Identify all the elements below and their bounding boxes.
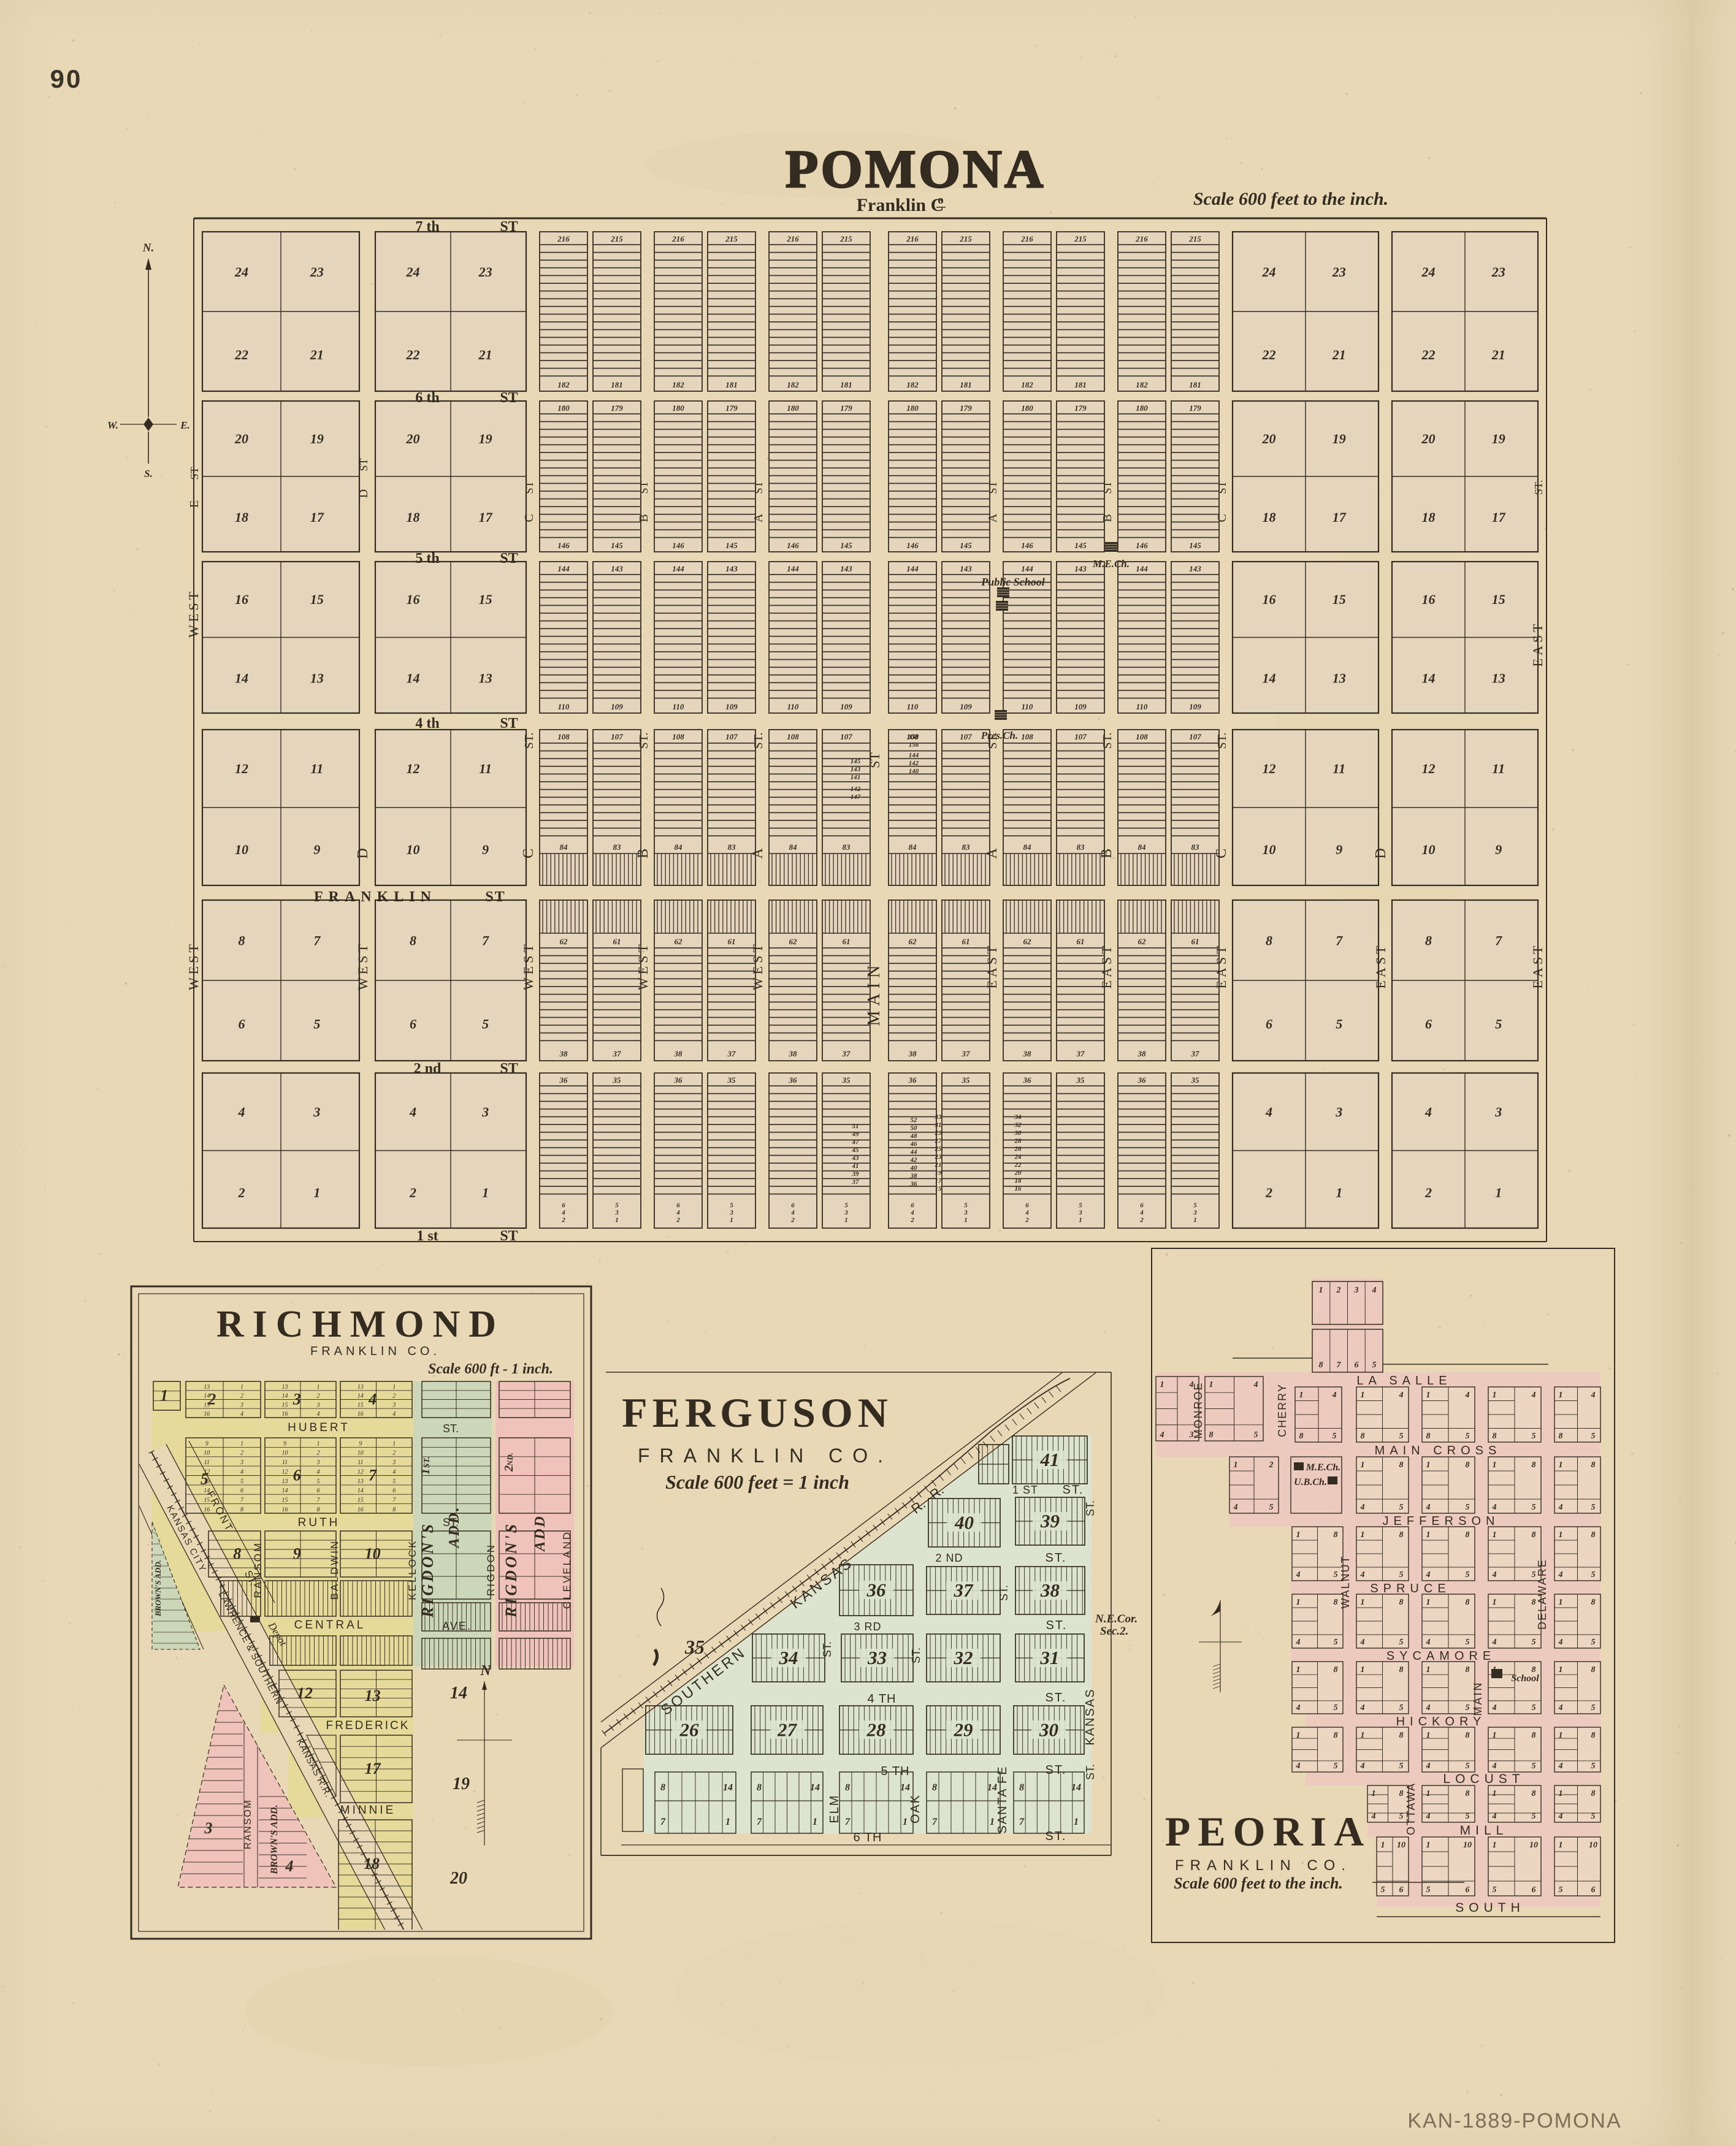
svg-text:143: 143 <box>611 564 623 573</box>
svg-text:8: 8 <box>932 1782 937 1793</box>
svg-text:6: 6 <box>911 1202 914 1209</box>
svg-text:5: 5 <box>1466 1762 1470 1771</box>
svg-text:37: 37 <box>842 1049 851 1058</box>
svg-text:5: 5 <box>1493 1885 1497 1895</box>
svg-text:3: 3 <box>316 1402 320 1408</box>
svg-text:13: 13 <box>310 671 324 686</box>
svg-text:13: 13 <box>479 671 492 686</box>
svg-text:179: 179 <box>1074 403 1087 413</box>
svg-text:19: 19 <box>1333 431 1346 446</box>
svg-text:180: 180 <box>787 403 799 413</box>
svg-text:13: 13 <box>358 1478 364 1485</box>
svg-text:EAST: EAST <box>1530 621 1545 667</box>
svg-text:8: 8 <box>1334 1665 1338 1674</box>
svg-text:5: 5 <box>1591 1432 1596 1441</box>
svg-text:146: 146 <box>1136 541 1148 550</box>
svg-text:ST.: ST. <box>1046 1763 1067 1777</box>
svg-text:5: 5 <box>1591 1812 1596 1821</box>
svg-text:17: 17 <box>1492 510 1506 525</box>
svg-text:5: 5 <box>1334 1570 1338 1579</box>
svg-text:8: 8 <box>1399 1530 1404 1540</box>
svg-text:5: 5 <box>313 1017 320 1032</box>
svg-text:8: 8 <box>1591 1665 1596 1674</box>
svg-text:6: 6 <box>1532 1885 1536 1895</box>
svg-text:144: 144 <box>1136 564 1148 573</box>
svg-text:22: 22 <box>1421 347 1436 362</box>
svg-text:110: 110 <box>558 702 570 711</box>
svg-text:84: 84 <box>1023 842 1032 852</box>
svg-text:13: 13 <box>282 1384 288 1391</box>
svg-text:MILL: MILL <box>1460 1823 1508 1838</box>
svg-text:3: 3 <box>963 1209 968 1216</box>
svg-text:5: 5 <box>964 1202 968 1209</box>
svg-text:180: 180 <box>1136 403 1148 413</box>
svg-text:6: 6 <box>1466 1885 1470 1895</box>
svg-text:61: 61 <box>1077 937 1085 946</box>
svg-text:1: 1 <box>240 1384 243 1391</box>
svg-text:9: 9 <box>293 1545 301 1563</box>
svg-text:10: 10 <box>1422 842 1436 857</box>
svg-text:5: 5 <box>1466 1638 1470 1647</box>
svg-text:7: 7 <box>757 1817 762 1827</box>
svg-text:26: 26 <box>679 1719 700 1741</box>
svg-text:WEST: WEST <box>521 941 536 990</box>
svg-text:83: 83 <box>613 842 622 852</box>
svg-text:D: D <box>357 489 370 498</box>
svg-text:4: 4 <box>561 1209 565 1216</box>
svg-text:40: 40 <box>954 1512 974 1533</box>
svg-text:19: 19 <box>935 1169 943 1177</box>
svg-text:144: 144 <box>1021 564 1033 573</box>
svg-text:6: 6 <box>1140 1202 1144 1209</box>
svg-text:7: 7 <box>1019 1817 1025 1827</box>
svg-text:5: 5 <box>615 1202 619 1209</box>
svg-text:38: 38 <box>1023 1049 1032 1058</box>
svg-text:110: 110 <box>907 702 919 711</box>
svg-text:62: 62 <box>675 937 683 946</box>
svg-text:4: 4 <box>1558 1812 1563 1821</box>
svg-text:4: 4 <box>1426 1812 1431 1821</box>
svg-text:HUBERT: HUBERT <box>288 1421 350 1434</box>
svg-text:4: 4 <box>1296 1703 1301 1713</box>
svg-text:18: 18 <box>1422 510 1436 525</box>
svg-text:144: 144 <box>787 564 799 573</box>
svg-text:8: 8 <box>1399 1731 1404 1740</box>
svg-text:110: 110 <box>673 702 684 711</box>
svg-text:4: 4 <box>1558 1703 1563 1713</box>
svg-text:6: 6 <box>791 1202 795 1209</box>
svg-text:8: 8 <box>1466 1598 1470 1607</box>
svg-text:146: 146 <box>557 541 570 550</box>
svg-text:5: 5 <box>1333 1432 1337 1441</box>
svg-text:37: 37 <box>1191 1049 1200 1058</box>
svg-text:32: 32 <box>1014 1121 1022 1129</box>
svg-text:4: 4 <box>368 1391 377 1408</box>
svg-text:145: 145 <box>960 541 972 550</box>
svg-text:36: 36 <box>910 1180 918 1188</box>
svg-text:21: 21 <box>478 347 492 362</box>
svg-text:180: 180 <box>557 403 570 413</box>
svg-text:143: 143 <box>725 564 738 573</box>
svg-text:38: 38 <box>908 1049 917 1058</box>
svg-text:1: 1 <box>903 1817 908 1827</box>
svg-text:21: 21 <box>1491 347 1505 362</box>
svg-text:182: 182 <box>1136 380 1148 389</box>
svg-text:6: 6 <box>410 1017 416 1032</box>
svg-text:9: 9 <box>1495 842 1502 857</box>
svg-text:4: 4 <box>409 1104 416 1120</box>
svg-text:5: 5 <box>1254 1430 1258 1440</box>
svg-text:1: 1 <box>1426 1789 1431 1798</box>
svg-text:83: 83 <box>1077 842 1085 852</box>
svg-text:4: 4 <box>1139 1209 1144 1216</box>
svg-text:84: 84 <box>789 842 798 852</box>
svg-text:1: 1 <box>1299 1391 1304 1400</box>
svg-text:19: 19 <box>1492 431 1505 446</box>
svg-text:109: 109 <box>725 702 738 711</box>
svg-text:26: 26 <box>1014 1145 1022 1153</box>
svg-text:13: 13 <box>358 1384 364 1391</box>
svg-text:38: 38 <box>789 1049 798 1058</box>
svg-text:35: 35 <box>613 1075 622 1085</box>
svg-text:3: 3 <box>313 1104 320 1120</box>
svg-text:10: 10 <box>1397 1841 1405 1850</box>
svg-text:8: 8 <box>1591 1530 1596 1540</box>
svg-text:ST.: ST. <box>1532 480 1545 495</box>
svg-text:5: 5 <box>1466 1503 1470 1512</box>
svg-text:13: 13 <box>1333 671 1346 686</box>
svg-text:ST.: ST. <box>1063 1483 1084 1497</box>
svg-text:5: 5 <box>1532 1762 1536 1771</box>
svg-text:24: 24 <box>1262 264 1276 280</box>
svg-text:4: 4 <box>790 1209 795 1216</box>
svg-text:1: 1 <box>1426 1391 1431 1400</box>
svg-text:1: 1 <box>1361 1391 1365 1400</box>
svg-text:34: 34 <box>1014 1113 1022 1121</box>
svg-text:W.: W. <box>107 419 118 431</box>
svg-text:8: 8 <box>1466 1789 1470 1798</box>
svg-text:8: 8 <box>1532 1731 1536 1740</box>
svg-text:CLEVELAND: CLEVELAND <box>561 1530 573 1609</box>
svg-text:5: 5 <box>1532 1638 1536 1647</box>
svg-text:36: 36 <box>674 1075 683 1085</box>
svg-text:35: 35 <box>684 1636 705 1658</box>
svg-text:180: 180 <box>672 403 684 413</box>
svg-text:22: 22 <box>1014 1161 1022 1169</box>
svg-text:1: 1 <box>1493 1841 1497 1850</box>
svg-text:23: 23 <box>1332 264 1346 280</box>
svg-text:RIGDON'S: RIGDON'S <box>419 1522 437 1618</box>
svg-text:27: 27 <box>935 1137 943 1145</box>
svg-text:10: 10 <box>282 1450 288 1457</box>
svg-text:14: 14 <box>900 1782 910 1793</box>
svg-text:1: 1 <box>1559 1789 1563 1798</box>
svg-text:AVE.: AVE. <box>442 1620 472 1632</box>
svg-text:4: 4 <box>1558 1762 1563 1771</box>
svg-text:3: 3 <box>392 1459 396 1466</box>
svg-text:2: 2 <box>409 1185 416 1200</box>
svg-text:4: 4 <box>1360 1570 1365 1579</box>
svg-text:4: 4 <box>1492 1638 1497 1647</box>
svg-text:16: 16 <box>407 592 420 607</box>
svg-text:12: 12 <box>297 1684 313 1702</box>
svg-text:16: 16 <box>1015 1185 1022 1193</box>
svg-text:ADD: ADD <box>532 1514 548 1552</box>
svg-text:1: 1 <box>1559 1665 1563 1674</box>
svg-text:10: 10 <box>235 842 248 857</box>
svg-text:1: 1 <box>1559 1391 1563 1400</box>
svg-text:11: 11 <box>282 1459 288 1466</box>
svg-text:7: 7 <box>932 1817 938 1827</box>
svg-text:5: 5 <box>1399 1503 1404 1512</box>
svg-text:FERGUSON: FERGUSON <box>622 1389 893 1436</box>
svg-text:4: 4 <box>910 1209 914 1216</box>
svg-text:4: 4 <box>1025 1209 1029 1216</box>
svg-text:5: 5 <box>1399 1812 1404 1821</box>
svg-text:16: 16 <box>235 592 248 607</box>
svg-text:8: 8 <box>1399 1789 1404 1798</box>
svg-text:1: 1 <box>1319 1286 1323 1295</box>
svg-text:15: 15 <box>204 1497 210 1504</box>
svg-text:18: 18 <box>364 1855 380 1873</box>
svg-text:ST: ST <box>485 889 505 905</box>
svg-text:1: 1 <box>813 1817 817 1827</box>
svg-text:181: 181 <box>840 380 852 389</box>
svg-text:182: 182 <box>672 380 684 389</box>
svg-text:182: 182 <box>787 380 799 389</box>
svg-text:49: 49 <box>852 1131 860 1138</box>
svg-text:4: 4 <box>317 1468 320 1475</box>
svg-text:4: 4 <box>1492 1812 1497 1821</box>
svg-text:17: 17 <box>1333 510 1347 525</box>
svg-text:Sec.2.: Sec.2. <box>1100 1625 1128 1638</box>
svg-text:1 ST: 1 ST <box>1012 1484 1038 1496</box>
svg-text:108: 108 <box>787 732 799 741</box>
svg-text:84: 84 <box>909 842 917 852</box>
svg-text:147: 147 <box>851 793 861 801</box>
svg-text:4: 4 <box>392 1468 396 1475</box>
svg-text:1: 1 <box>317 1384 320 1391</box>
svg-text:41: 41 <box>1040 1449 1060 1470</box>
svg-text:215: 215 <box>959 234 972 243</box>
svg-text:12: 12 <box>204 1468 210 1475</box>
svg-text:1: 1 <box>1074 1817 1079 1827</box>
svg-text:LA SALLE: LA SALLE <box>1356 1374 1451 1388</box>
svg-text:16: 16 <box>1263 592 1276 607</box>
svg-text:8: 8 <box>239 933 245 948</box>
svg-text:145: 145 <box>1189 541 1201 550</box>
svg-text:15: 15 <box>282 1402 288 1408</box>
svg-text:6: 6 <box>1425 1017 1432 1032</box>
svg-text:7: 7 <box>313 933 321 948</box>
svg-text:3: 3 <box>1078 1209 1082 1216</box>
svg-text:1: 1 <box>1426 1598 1431 1607</box>
svg-text:KELLOCK: KELLOCK <box>407 1539 418 1600</box>
svg-text:8: 8 <box>1493 1432 1497 1441</box>
svg-text:8: 8 <box>240 1506 243 1513</box>
svg-text:216: 216 <box>906 234 919 243</box>
svg-text:142: 142 <box>851 785 861 793</box>
svg-text:14: 14 <box>450 1684 467 1703</box>
svg-text:14: 14 <box>723 1782 733 1793</box>
svg-text:1: 1 <box>1559 1731 1563 1740</box>
svg-text:5: 5 <box>482 1017 489 1032</box>
svg-text:1: 1 <box>1381 1841 1385 1850</box>
svg-text:9: 9 <box>283 1440 286 1447</box>
svg-text:7: 7 <box>482 933 489 948</box>
svg-text:30: 30 <box>1039 1719 1058 1741</box>
svg-text:3: 3 <box>392 1402 396 1408</box>
svg-text:182: 182 <box>557 380 570 389</box>
svg-text:6: 6 <box>562 1202 565 1209</box>
svg-text:ST.: ST. <box>423 1457 432 1468</box>
svg-text:4: 4 <box>1160 1430 1164 1440</box>
svg-text:5: 5 <box>730 1202 733 1209</box>
svg-text:62: 62 <box>1138 937 1147 946</box>
svg-text:31: 31 <box>935 1121 942 1129</box>
svg-text:146: 146 <box>906 541 919 550</box>
svg-text:8: 8 <box>1591 1789 1596 1798</box>
svg-text:13: 13 <box>204 1384 210 1391</box>
svg-text:181: 181 <box>611 380 623 389</box>
svg-text:36: 36 <box>1138 1075 1147 1085</box>
svg-text:4: 4 <box>1426 1762 1431 1771</box>
svg-text:ST: ST <box>1101 481 1114 494</box>
svg-text:N.: N. <box>142 242 154 254</box>
svg-text:2: 2 <box>240 1450 243 1457</box>
svg-text:FREDERICK: FREDERICK <box>326 1719 410 1732</box>
svg-text:61: 61 <box>728 937 736 946</box>
svg-text:15: 15 <box>310 592 324 607</box>
svg-text:181: 181 <box>1189 380 1201 389</box>
svg-text:107: 107 <box>725 732 738 741</box>
svg-text:5: 5 <box>844 1202 848 1209</box>
svg-text:BROWN'S ADD.: BROWN'S ADD. <box>153 1560 163 1617</box>
svg-text:RANSOM: RANSOM <box>243 1799 253 1849</box>
svg-text:ST: ST <box>638 481 650 494</box>
svg-text:37: 37 <box>954 1579 974 1601</box>
svg-text:8: 8 <box>1532 1789 1536 1798</box>
svg-text:4: 4 <box>1360 1703 1365 1713</box>
svg-text:5: 5 <box>1193 1202 1197 1209</box>
svg-text:4: 4 <box>1372 1286 1377 1295</box>
svg-text:24: 24 <box>234 264 248 280</box>
svg-text:ST.: ST. <box>910 1648 922 1663</box>
svg-text:1: 1 <box>1361 1461 1365 1470</box>
svg-text:5: 5 <box>1466 1812 1470 1821</box>
svg-text:5: 5 <box>1591 1762 1596 1771</box>
svg-text:1: 1 <box>1559 1530 1563 1540</box>
svg-text:145: 145 <box>1074 541 1087 550</box>
svg-text:Scale 600 feet = 1 inch: Scale 600 feet = 1 inch <box>665 1471 849 1493</box>
svg-text:2: 2 <box>561 1216 565 1224</box>
svg-text:WEST: WEST <box>635 941 651 990</box>
svg-text:5: 5 <box>1334 1638 1338 1647</box>
svg-text:5: 5 <box>1532 1432 1536 1441</box>
svg-text:14: 14 <box>204 1393 210 1400</box>
svg-text:107: 107 <box>840 732 852 741</box>
svg-text:2: 2 <box>240 1393 243 1400</box>
svg-text:144: 144 <box>906 564 919 573</box>
svg-text:83: 83 <box>962 842 971 852</box>
svg-text:1: 1 <box>1493 1598 1497 1607</box>
svg-text:14: 14 <box>1071 1782 1081 1793</box>
svg-text:SOUTH: SOUTH <box>1455 1901 1525 1915</box>
svg-text:51: 51 <box>852 1123 859 1130</box>
svg-text:FRANKLIN CO.: FRANKLIN CO. <box>310 1345 440 1358</box>
svg-text:EAST: EAST <box>1530 943 1545 989</box>
svg-text:108: 108 <box>672 732 684 741</box>
svg-text:N: N <box>480 1663 492 1679</box>
svg-text:5: 5 <box>1591 1503 1596 1512</box>
svg-text:216: 216 <box>557 234 570 243</box>
svg-text:B: B <box>635 849 651 858</box>
svg-text:61: 61 <box>843 937 851 946</box>
svg-text:108: 108 <box>1136 732 1148 741</box>
svg-text:4: 4 <box>1492 1570 1497 1579</box>
svg-text:146: 146 <box>672 541 684 550</box>
svg-text:12: 12 <box>235 761 248 776</box>
svg-text:ST.: ST. <box>443 1422 459 1435</box>
svg-text:ST: ST <box>188 467 201 479</box>
svg-text:1: 1 <box>1559 1841 1563 1850</box>
svg-text:8: 8 <box>1532 1598 1536 1607</box>
svg-text:2: 2 <box>676 1216 680 1224</box>
svg-text:13: 13 <box>204 1478 210 1485</box>
svg-text:2: 2 <box>238 1185 245 1200</box>
svg-text:181: 181 <box>1074 380 1087 389</box>
svg-text:11: 11 <box>1492 761 1505 776</box>
svg-text:EAST: EAST <box>984 943 1000 989</box>
svg-text:3 RD: 3 RD <box>854 1621 881 1633</box>
svg-text:1: 1 <box>419 1468 432 1475</box>
svg-text:20: 20 <box>1014 1169 1022 1177</box>
svg-text:1: 1 <box>1296 1530 1301 1540</box>
svg-text:9: 9 <box>205 1440 208 1447</box>
svg-text:1: 1 <box>1296 1598 1301 1607</box>
svg-text:144: 144 <box>909 752 919 759</box>
svg-text:8: 8 <box>233 1545 241 1563</box>
svg-text:2: 2 <box>392 1450 396 1457</box>
svg-text:23: 23 <box>935 1153 943 1161</box>
svg-text:4: 4 <box>1426 1638 1431 1647</box>
svg-text:5 TH: 5 TH <box>881 1765 910 1778</box>
svg-text:3: 3 <box>240 1402 243 1408</box>
svg-text:ST.: ST. <box>998 1585 1010 1601</box>
svg-text:11: 11 <box>204 1459 210 1466</box>
svg-text:14: 14 <box>358 1487 364 1494</box>
svg-text:1: 1 <box>482 1185 489 1200</box>
svg-text:13: 13 <box>1492 671 1505 686</box>
svg-text:35: 35 <box>1076 1075 1085 1085</box>
svg-text:5: 5 <box>240 1478 243 1485</box>
svg-text:22: 22 <box>234 347 248 362</box>
svg-text:2: 2 <box>1424 1185 1432 1200</box>
svg-text:1: 1 <box>1495 1185 1502 1200</box>
svg-text:8: 8 <box>1591 1461 1596 1470</box>
svg-text:5: 5 <box>1426 1885 1431 1895</box>
svg-text:31: 31 <box>1040 1647 1060 1668</box>
svg-text:39: 39 <box>852 1170 860 1178</box>
svg-text:5: 5 <box>1591 1703 1596 1713</box>
svg-text:3: 3 <box>1494 1104 1502 1120</box>
svg-text:15: 15 <box>358 1497 364 1504</box>
svg-text:WEST: WEST <box>355 941 370 990</box>
svg-text:1: 1 <box>1426 1461 1431 1470</box>
svg-text:27: 27 <box>777 1719 798 1741</box>
svg-text:OTTAWA: OTTAWA <box>1405 1782 1417 1835</box>
svg-text:10: 10 <box>365 1545 381 1563</box>
